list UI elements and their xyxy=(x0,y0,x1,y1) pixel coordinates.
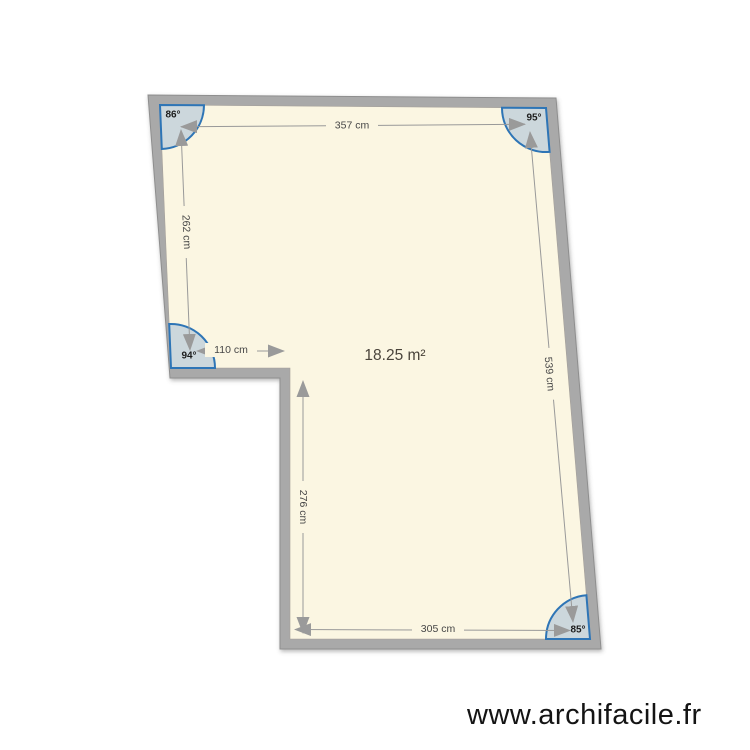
area-label: 18.25 m² xyxy=(364,347,425,364)
dimension-value: 262 cm xyxy=(179,214,193,249)
plan-page: 357 cm 262 cm 539 cm 110 cm 276 cm 305 c… xyxy=(0,0,750,750)
dimension-label-bottom-wall[interactable]: 305 cm xyxy=(412,622,464,636)
dimension-value: 357 cm xyxy=(335,119,370,131)
dimension-label-inner-wall[interactable]: 276 cm xyxy=(296,481,310,533)
angle-label-top-left: 86° xyxy=(165,110,180,121)
watermark: www.archifacile.fr xyxy=(467,699,702,732)
dimension-value: 276 cm xyxy=(297,490,309,525)
dimension-label-notch-wall[interactable]: 110 cm xyxy=(205,343,257,357)
dimension-value: 305 cm xyxy=(421,623,456,635)
angle-label-bottom-right: 85° xyxy=(570,625,585,636)
dimension-label-left-wall[interactable]: 262 cm xyxy=(178,206,195,259)
dimension-label-top-wall[interactable]: 357 cm xyxy=(326,119,378,133)
dimension-value: 110 cm xyxy=(214,344,248,356)
angle-label-mid-left: 94° xyxy=(181,351,196,362)
angle-label-top-right: 95° xyxy=(526,113,541,124)
floor-plan-canvas: 357 cm 262 cm 539 cm 110 cm 276 cm 305 c… xyxy=(0,0,750,750)
